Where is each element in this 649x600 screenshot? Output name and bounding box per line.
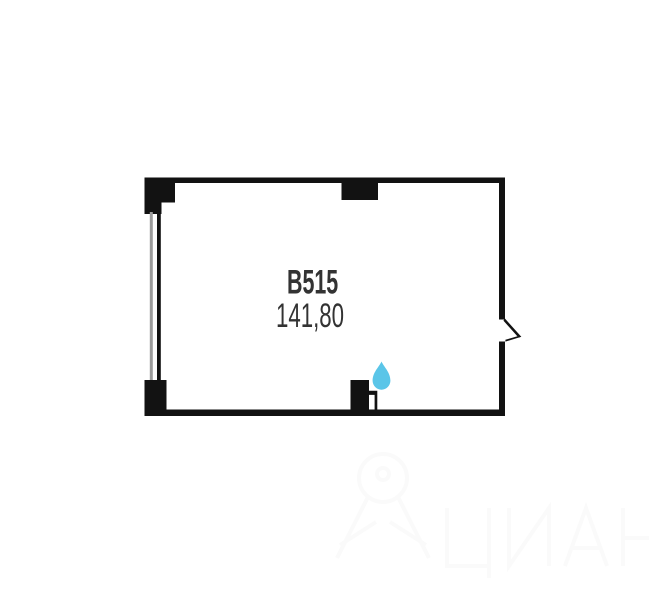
svg-text:B515: B515 bbox=[287, 263, 338, 301]
svg-text:141,80: 141,80 bbox=[276, 297, 344, 335]
